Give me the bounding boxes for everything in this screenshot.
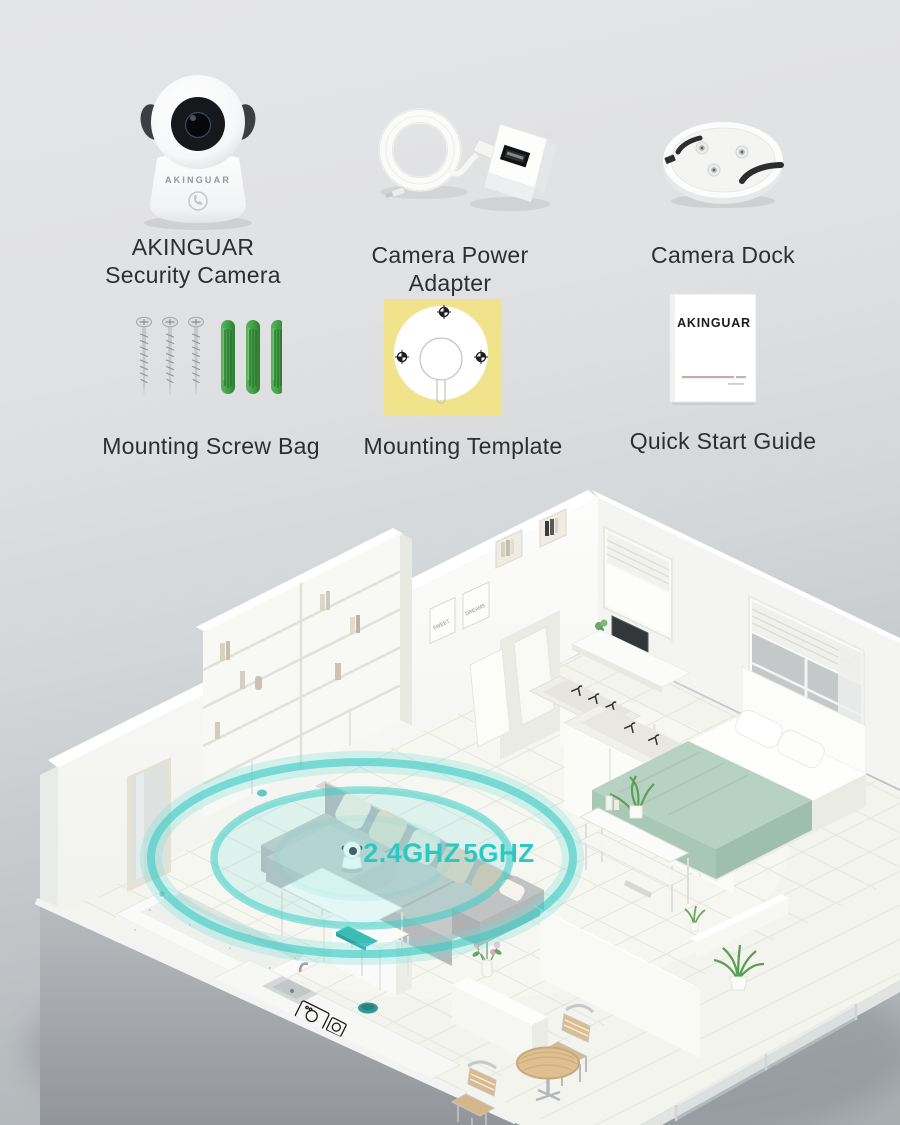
guide-fineprint: [736, 376, 746, 378]
item-label-guide: Quick Start Guide: [598, 427, 848, 455]
quick-start-guide-image: AKINGUAR: [658, 288, 768, 408]
item-label-screw-bag: Mounting Screw Bag: [56, 432, 366, 460]
dock-surface: [671, 128, 775, 192]
wifi-label-24ghz: 2.4GHZ: [363, 838, 461, 868]
guide-brand: AKINGUAR: [677, 316, 751, 330]
decor-bottle: [614, 800, 619, 810]
mounting-screws-image: [122, 310, 282, 410]
teal-bowl-inner: [362, 1004, 375, 1010]
cable-strand: [386, 116, 454, 184]
item-label-line: Security Camera: [58, 261, 328, 289]
product-infographic: AKINGUAR: [0, 0, 900, 1125]
item-label-template: Mounting Template: [338, 432, 588, 460]
floorplan-render: SWEET DREAMS: [0, 480, 900, 1125]
item-label-line: Camera Power: [335, 241, 565, 269]
decor-bottle: [606, 796, 612, 810]
camera-dock-image: [638, 108, 808, 218]
item-label-security-camera: AKINGUAR Security Camera: [58, 233, 328, 289]
template-circle: [394, 306, 488, 400]
guide-cover: [670, 294, 756, 402]
item-label-line: Adapter: [335, 269, 565, 297]
teal-cup: [257, 790, 267, 797]
wifi-coverage: 2.4GHZ 5GHZ: [151, 762, 573, 954]
camera-body-brand: AKINGUAR: [165, 175, 231, 185]
item-label-line: Quick Start Guide: [598, 427, 848, 455]
camera-lens: [186, 113, 211, 138]
item-label-line: AKINGUAR: [58, 233, 328, 261]
security-camera-image: AKINGUAR: [103, 62, 293, 232]
camera-lens-glint: [190, 115, 196, 121]
item-label-line: Mounting Template: [338, 432, 588, 460]
adapter-shadow: [470, 197, 550, 211]
item-label-line: Mounting Screw Bag: [56, 432, 366, 460]
wall-anchors: [221, 320, 282, 394]
mounting-template-image: [381, 297, 505, 419]
item-label-line: Camera Dock: [608, 241, 838, 269]
guide-spine: [670, 294, 675, 402]
item-label-camera-dock: Camera Dock: [608, 241, 838, 269]
item-label-power-adapter: Camera Power Adapter: [335, 241, 565, 297]
cable-strand: [393, 123, 448, 178]
guide-fineprint: [728, 383, 744, 385]
wall-adapter: [484, 124, 556, 202]
power-adapter-image: [348, 88, 578, 228]
screws: [137, 317, 204, 396]
guide-fineprint: [682, 376, 734, 378]
wifi-label-5ghz: 5GHZ: [463, 838, 534, 868]
